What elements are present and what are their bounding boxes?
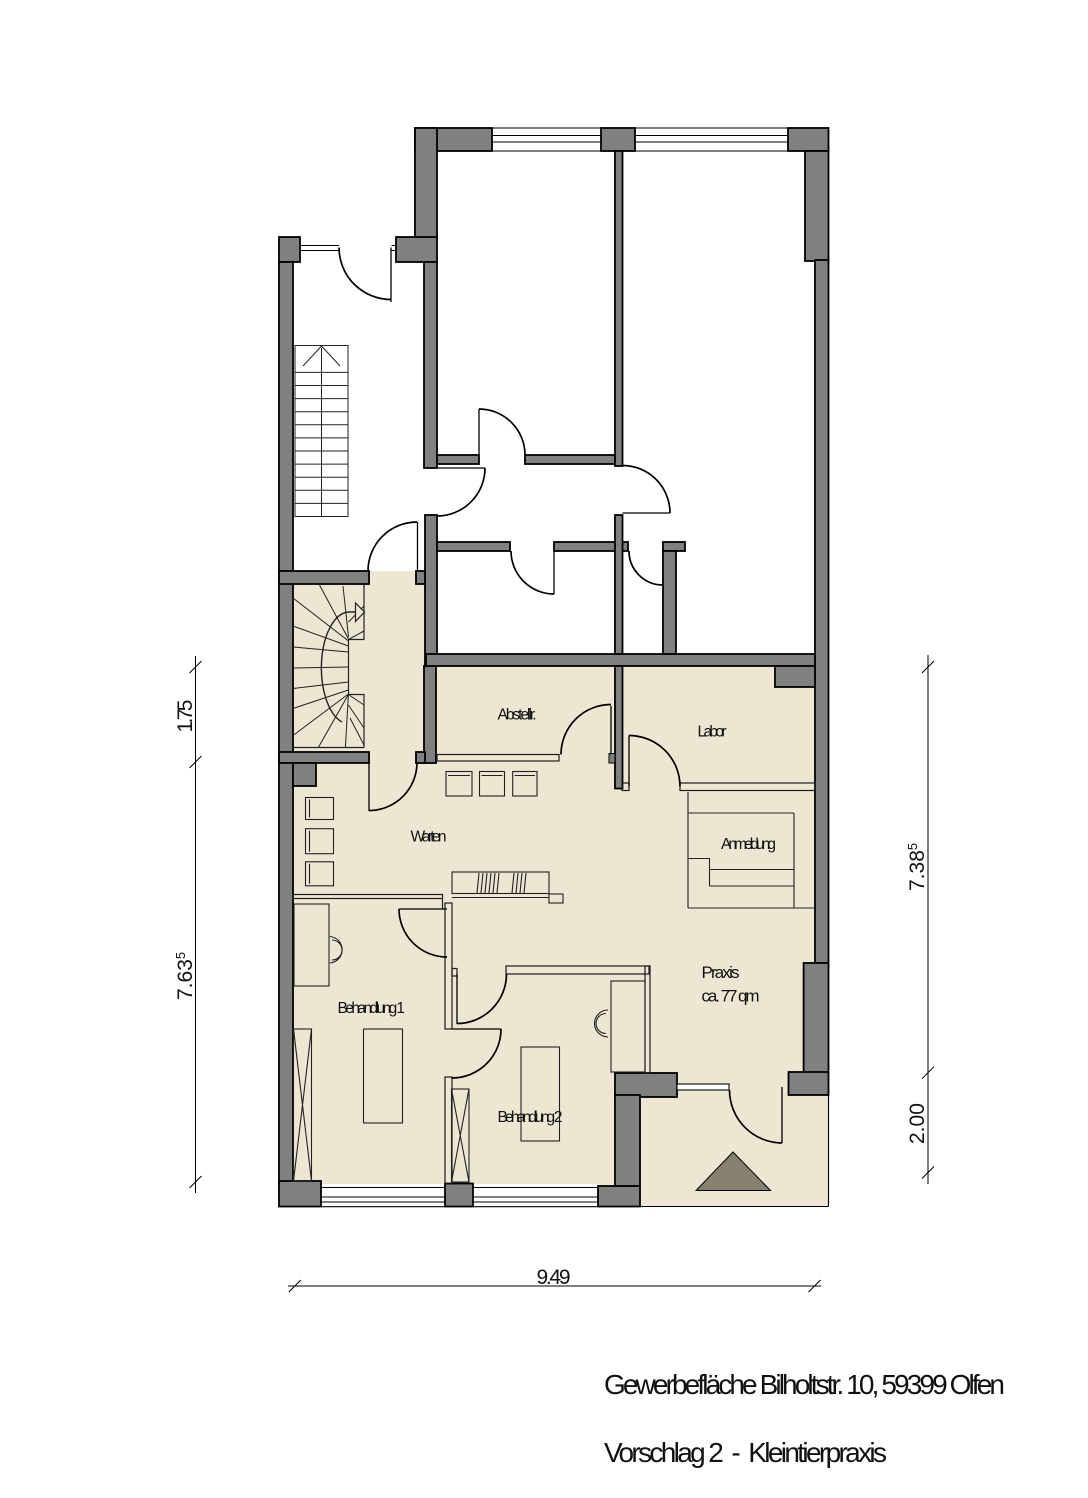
svg-text:Behandlung 1: Behandlung 1: [338, 1000, 406, 1017]
svg-text:ca. 77 qm: ca. 77 qm: [702, 987, 760, 1006]
svg-text:9.49: 9.49: [537, 1266, 571, 1289]
svg-text:1.75: 1.75: [174, 700, 197, 733]
svg-text:Vorschlag 2 - Kleintierpraxi: Vorschlag 2 - Kleintierpraxis: [604, 1437, 887, 1468]
svg-text:Behandlung 2: Behandlung 2: [498, 1109, 563, 1126]
svg-text:Gewerbefläche Bilholtstr. 10,: Gewerbefläche Bilholtstr. 10, 59399 Olfe…: [604, 1369, 1005, 1400]
svg-text:Anmeldung: Anmeldung: [721, 836, 776, 853]
svg-text:Praxis: Praxis: [702, 963, 740, 982]
svg-text:Warten: Warten: [411, 829, 447, 846]
svg-text:Abstellr.: Abstellr.: [498, 707, 537, 724]
svg-text:2.00: 2.00: [906, 1103, 929, 1144]
svg-text:Labor: Labor: [698, 724, 727, 741]
